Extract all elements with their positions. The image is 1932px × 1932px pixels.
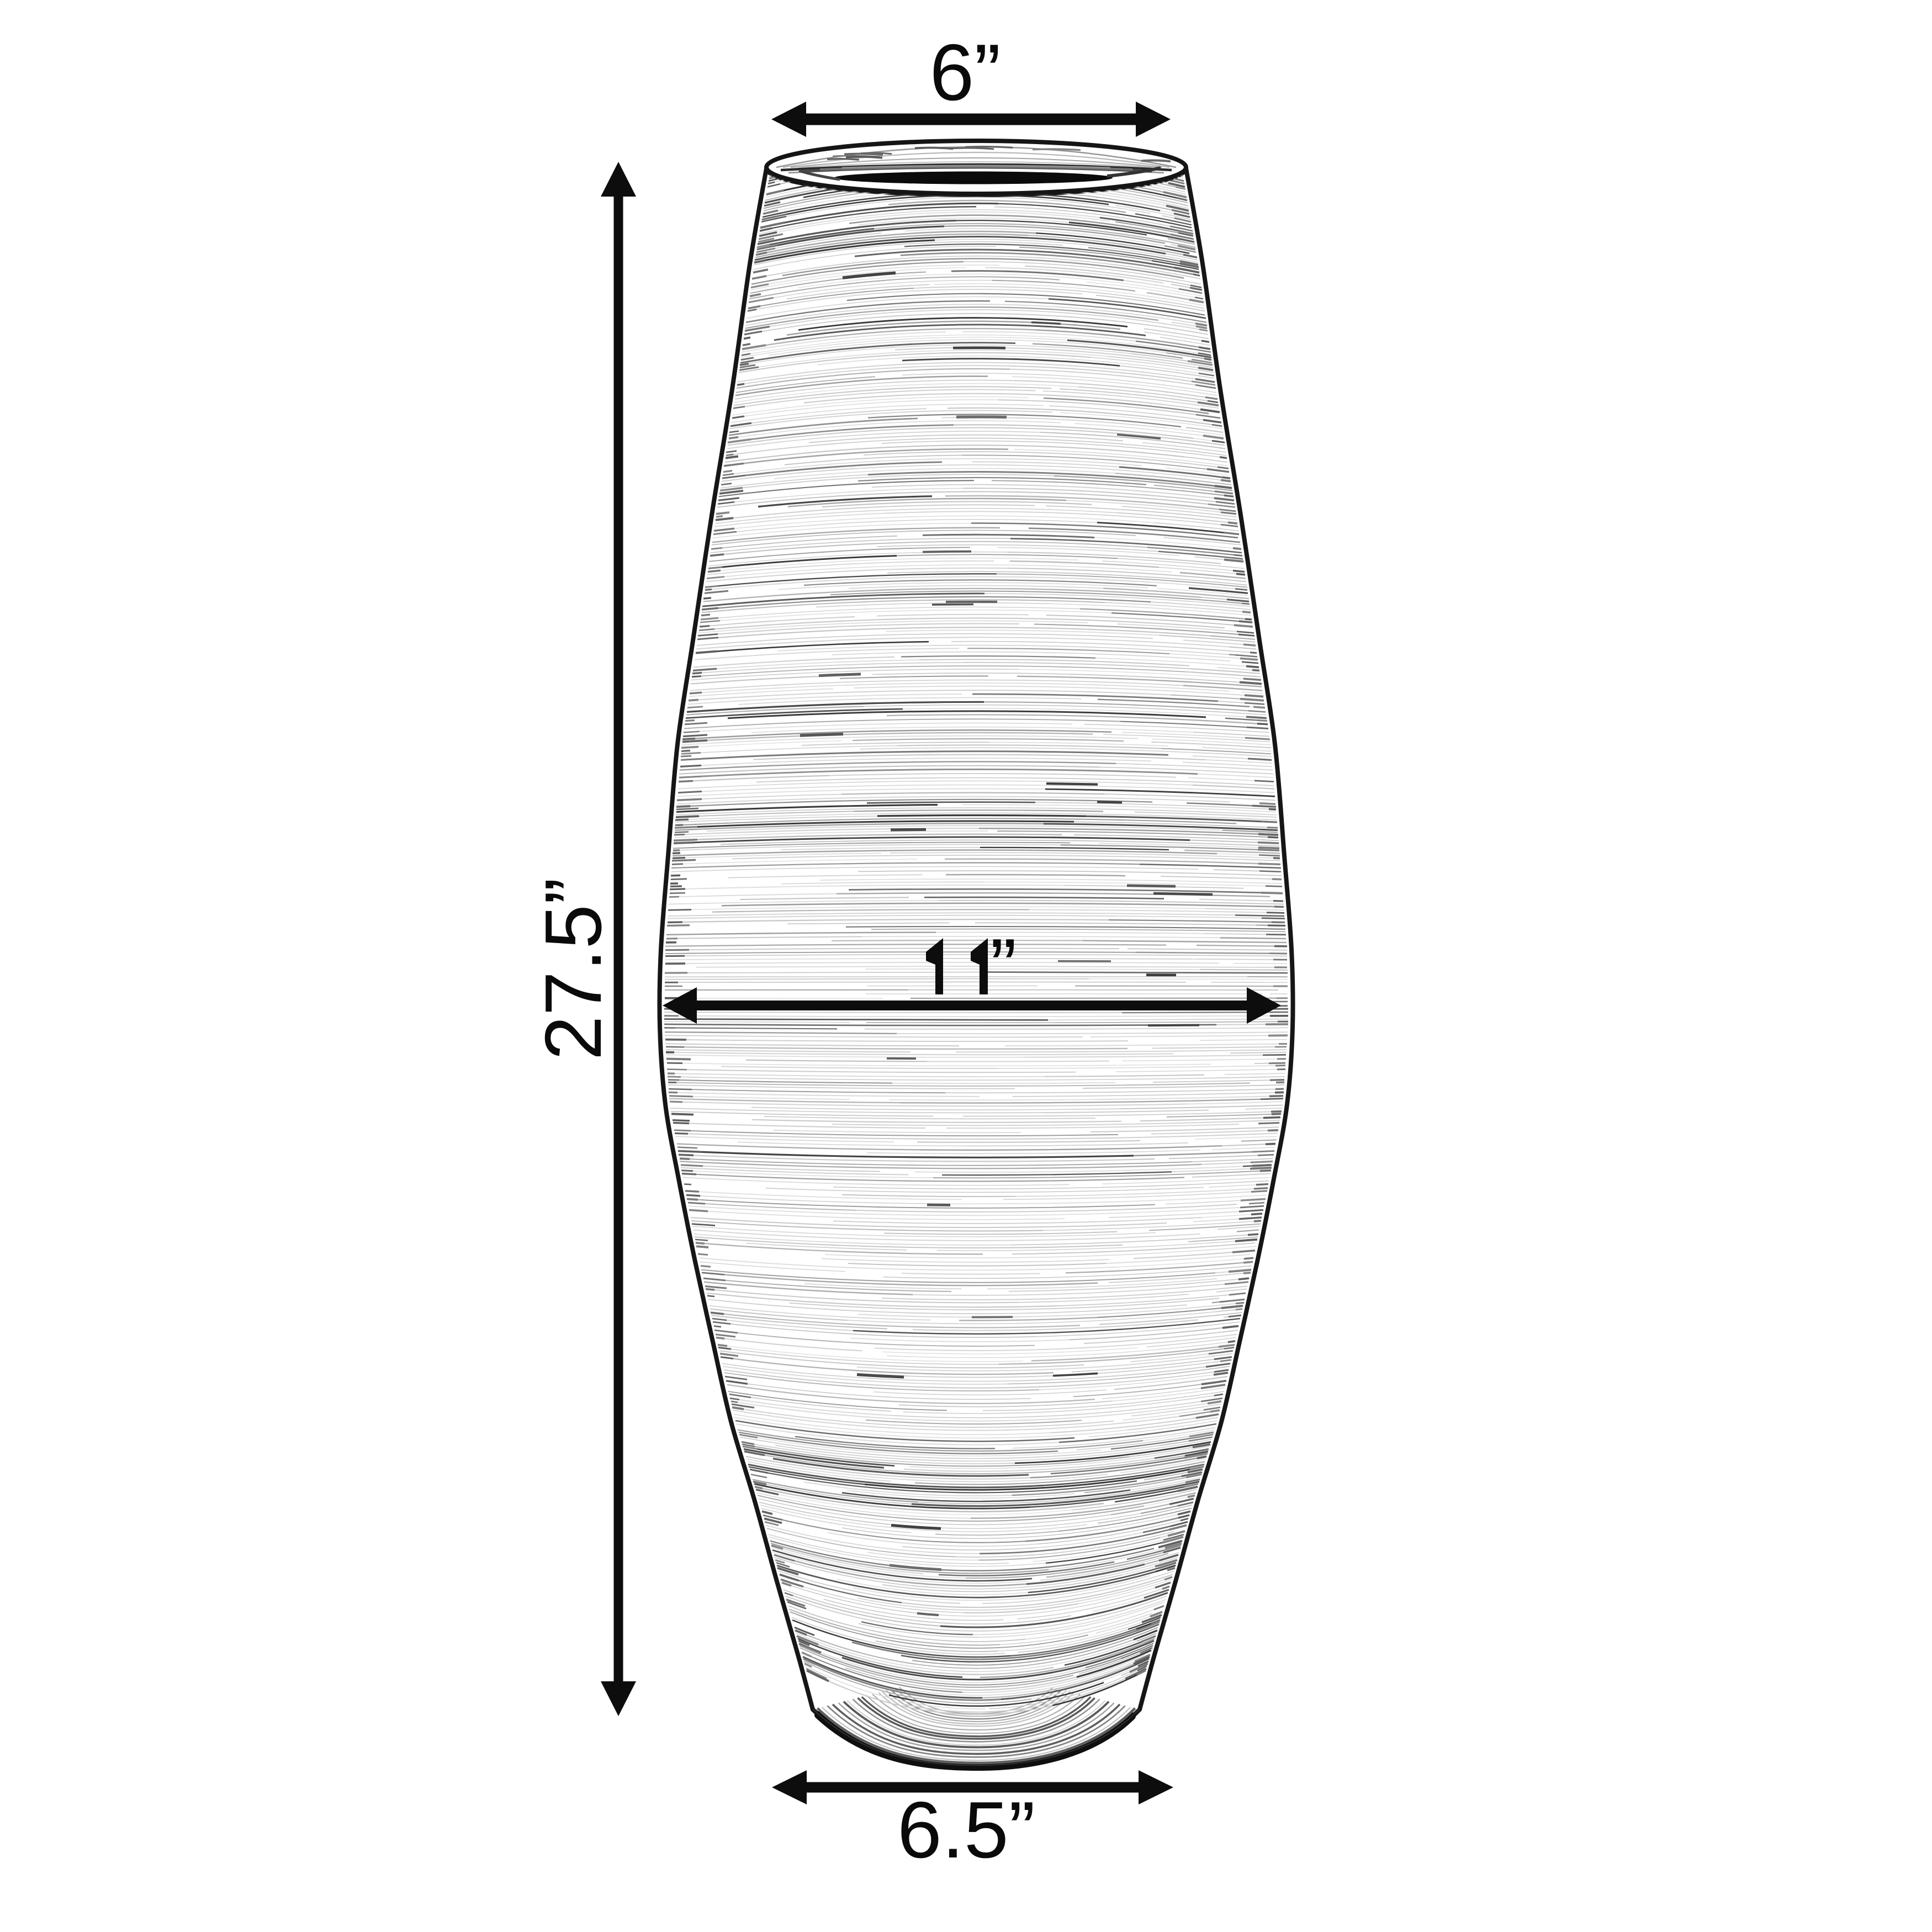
svg-text:27.5”: 27.5” [528, 878, 618, 1061]
svg-text:”: ” [990, 922, 1017, 1012]
svg-text:6”: 6” [930, 28, 1001, 117]
svg-text:6.5”: 6.5” [897, 1785, 1035, 1875]
